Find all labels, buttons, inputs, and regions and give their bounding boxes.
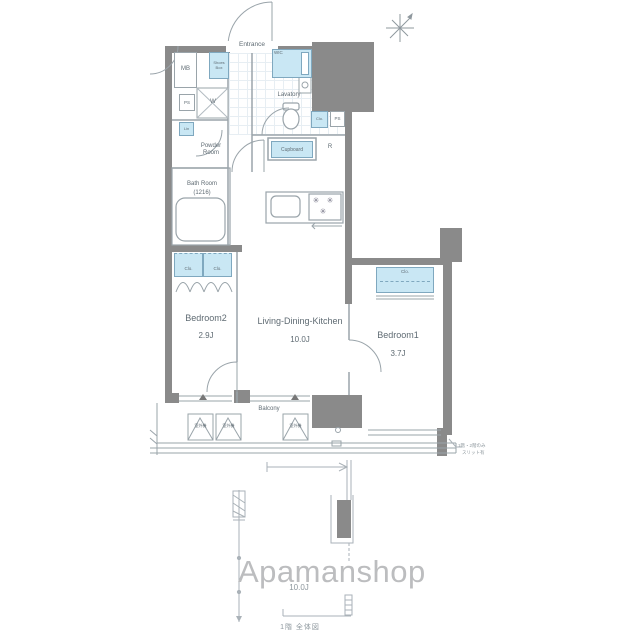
bedroom2-size: 2.9J xyxy=(190,331,222,341)
ldk-size: 10.0J xyxy=(286,335,314,345)
powder-room-label: Powder Room xyxy=(193,143,229,157)
closet-label: Clo. xyxy=(377,269,433,274)
pipe-space-left-label: PS xyxy=(184,100,190,105)
bathtub-icon xyxy=(172,168,230,245)
bath-room-size: (1216) xyxy=(186,190,218,197)
hanger-pipe-icon xyxy=(380,281,430,282)
wic-shelf-icon xyxy=(301,52,309,75)
side-note-line2: スリット有 xyxy=(462,450,502,455)
lower-floor-size: 10.0J xyxy=(281,583,317,593)
bedroom1-size: 3.7J xyxy=(382,349,414,359)
burner-icon: ✳ xyxy=(325,196,335,206)
outdoor-unit-label: 室外機 xyxy=(188,424,213,429)
closet-bedroom2-left: Clo. xyxy=(174,253,203,277)
pipe-space-right-label: PS xyxy=(334,116,340,121)
entrance-label: Entrance xyxy=(226,41,278,52)
burner-icon: ✳ xyxy=(311,196,321,206)
toilet-icon xyxy=(283,103,299,129)
outdoor-unit-label: 室外機 xyxy=(216,424,241,429)
wic-closet: WIC xyxy=(272,49,312,78)
shoes-box-label: Shoes Box xyxy=(210,61,228,71)
closet-label: Clo. xyxy=(175,266,202,271)
lavatory-label: Lavatory xyxy=(270,92,308,99)
watermark: Apamanshop xyxy=(238,554,426,590)
burner-icon: ✳ xyxy=(318,207,328,217)
cupboard-label: Cupboard xyxy=(281,147,303,153)
footer-note: 1階 全体図 xyxy=(268,624,332,632)
closet-label: Clo. xyxy=(204,266,231,271)
dimension-lines xyxy=(233,439,462,622)
linen-label: Lin xyxy=(184,127,189,132)
wic-label: WIC xyxy=(274,50,283,55)
refrigerator-label: R xyxy=(322,144,338,151)
north-compass-icon xyxy=(386,14,414,42)
balcony-label: Balcony xyxy=(252,406,286,413)
bedroom2-label: Bedroom2 xyxy=(178,313,234,324)
outdoor-unit-label: 室外機 xyxy=(283,424,308,429)
washbasin-icon xyxy=(299,77,311,93)
closet-lavatory-label: Clo. xyxy=(316,117,323,122)
sink-icon xyxy=(271,196,300,217)
side-note-line1: 1階・2階のみ xyxy=(458,443,502,448)
meter-box-label: MB xyxy=(181,66,190,73)
bedroom1-label: Bedroom1 xyxy=(370,330,426,341)
closet-bedroom2-right: Clo. xyxy=(203,253,232,277)
ldk-label: Living-Dining-Kitchen xyxy=(250,316,350,327)
washer-label: W xyxy=(205,99,221,106)
floor-plan-canvas: Entrance MB Shoes Box WIC PS W Lin Lavat… xyxy=(0,0,640,639)
bath-room-label: Bath Room xyxy=(182,181,222,188)
closet-bedroom1: Clo. xyxy=(376,267,434,293)
